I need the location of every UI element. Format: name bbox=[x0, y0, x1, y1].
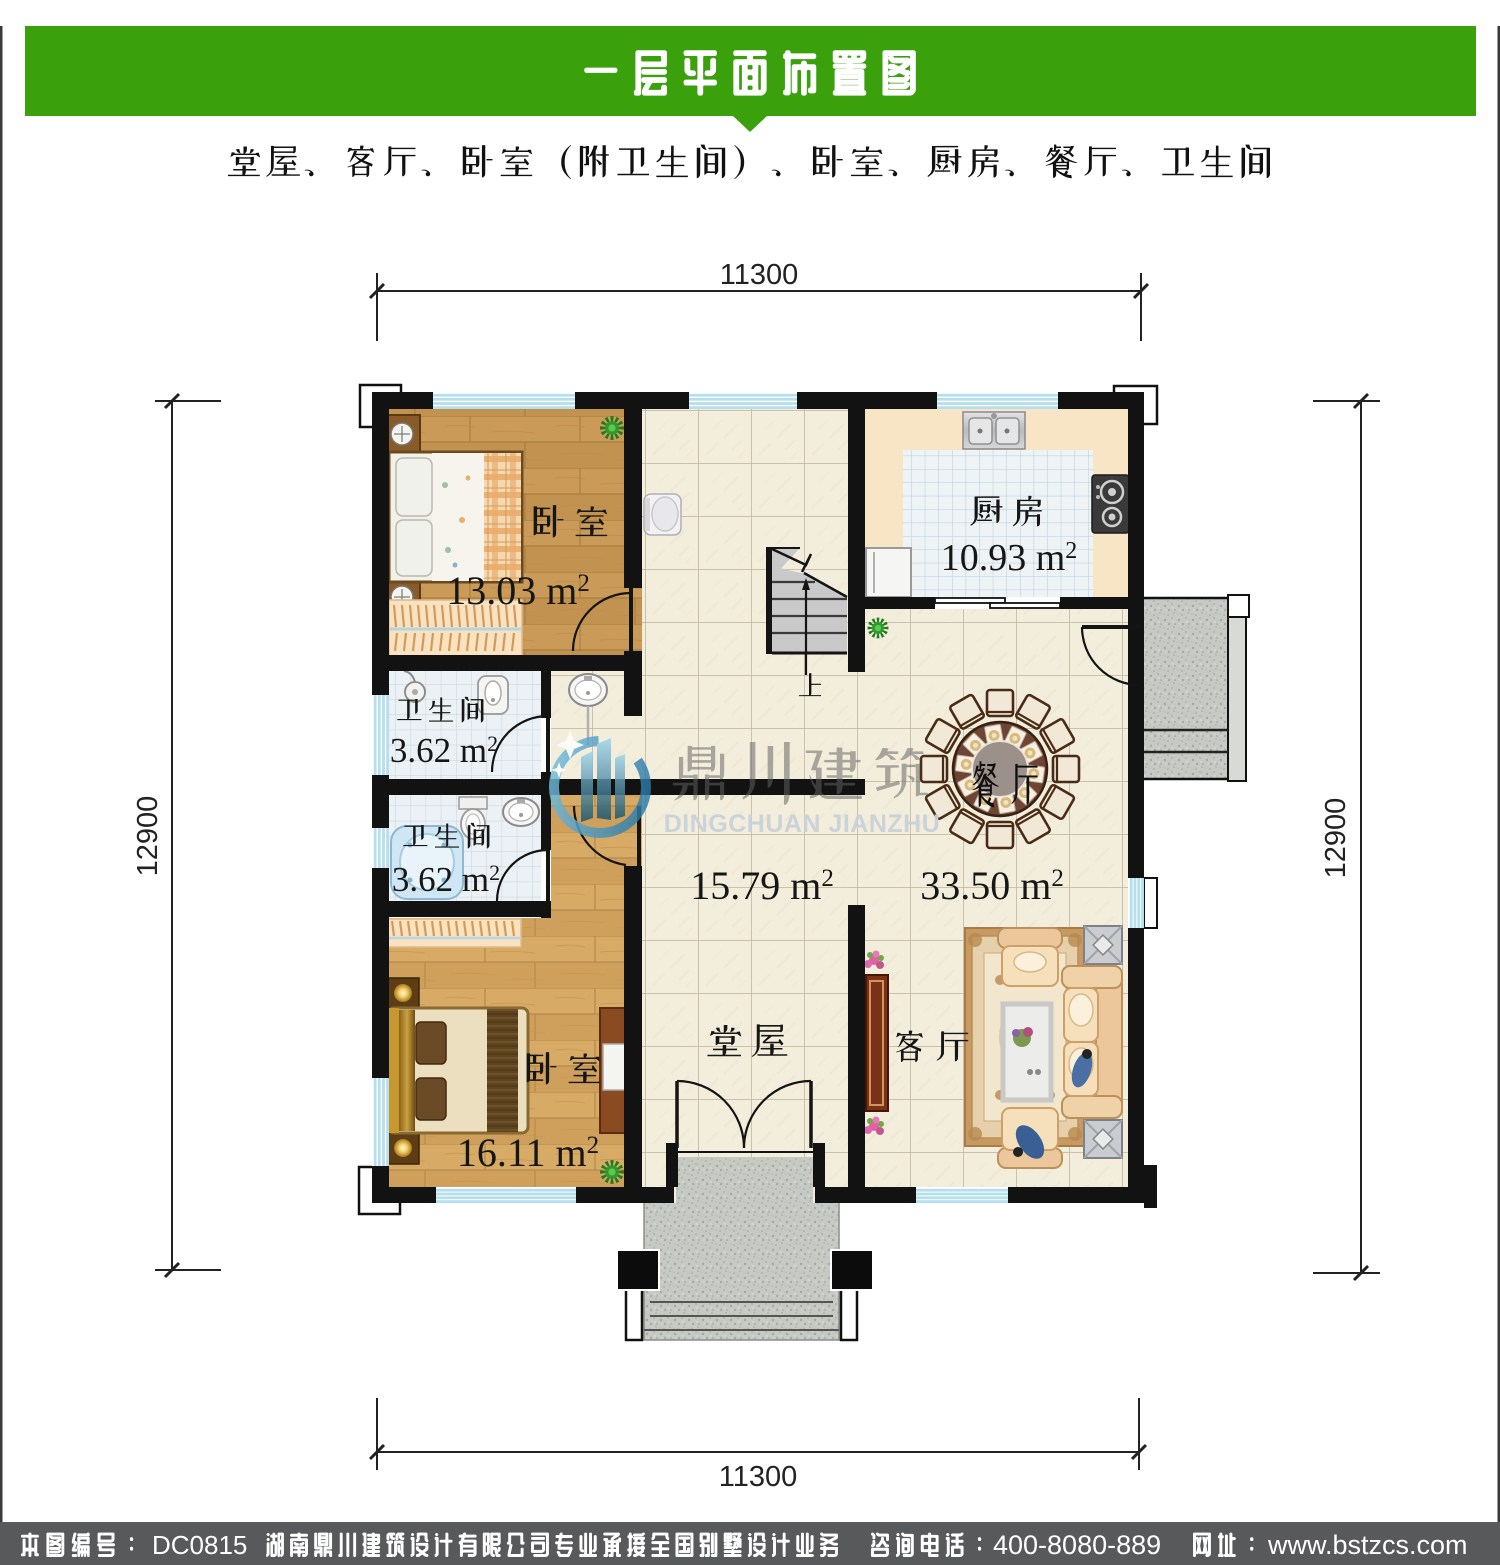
svg-text:11300: 11300 bbox=[720, 259, 799, 291]
svg-text:DINGCHUAN JIANZHU: DINGCHUAN JIANZHU bbox=[664, 810, 941, 838]
svg-text:15.79 m2: 15.79 m2 bbox=[690, 863, 834, 908]
svg-text:11300: 11300 bbox=[719, 1461, 798, 1493]
svg-text:13.03 m2: 13.03 m2 bbox=[446, 568, 590, 613]
svg-text:33.50 m2: 33.50 m2 bbox=[920, 863, 1064, 908]
svg-text:400-8080-889: 400-8080-889 bbox=[993, 1530, 1161, 1560]
svg-text:12900: 12900 bbox=[132, 796, 164, 877]
svg-text:www.bstzcs.com: www.bstzcs.com bbox=[1267, 1530, 1468, 1560]
svg-text:3.62 m2: 3.62 m2 bbox=[390, 731, 498, 770]
svg-text:10.93 m2: 10.93 m2 bbox=[941, 537, 1078, 579]
svg-text:DC0815: DC0815 bbox=[152, 1530, 247, 1560]
svg-text:12900: 12900 bbox=[1320, 798, 1352, 879]
svg-text:3.62 m2: 3.62 m2 bbox=[392, 860, 500, 899]
svg-text:16.11 m2: 16.11 m2 bbox=[457, 1130, 599, 1175]
